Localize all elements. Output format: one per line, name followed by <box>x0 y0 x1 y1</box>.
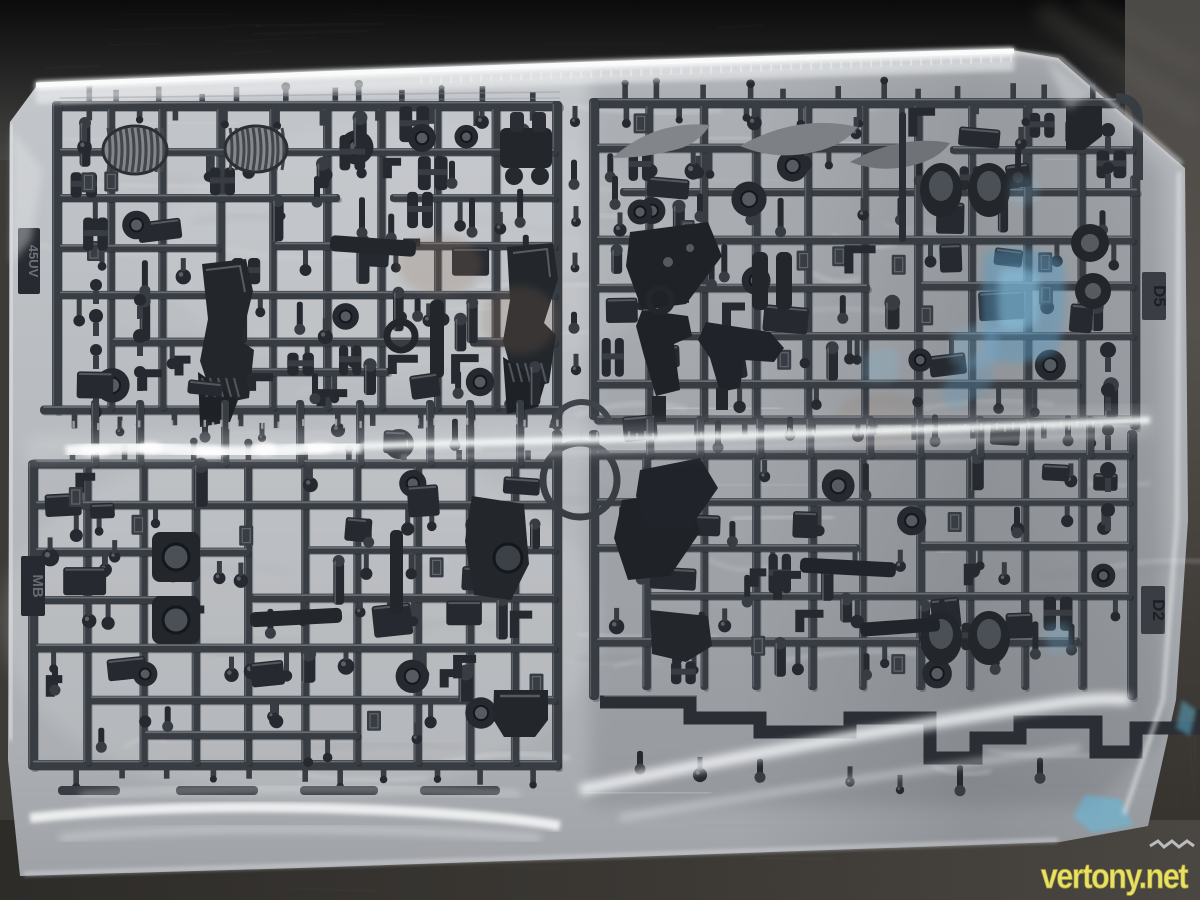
svg-text:MB: MB <box>29 574 46 597</box>
svg-text:vertony.net: vertony.net <box>1041 857 1189 897</box>
svg-text:45UV: 45UV <box>26 245 41 278</box>
svg-text:D2: D2 <box>1149 599 1168 621</box>
svg-text:D5: D5 <box>1150 285 1169 307</box>
